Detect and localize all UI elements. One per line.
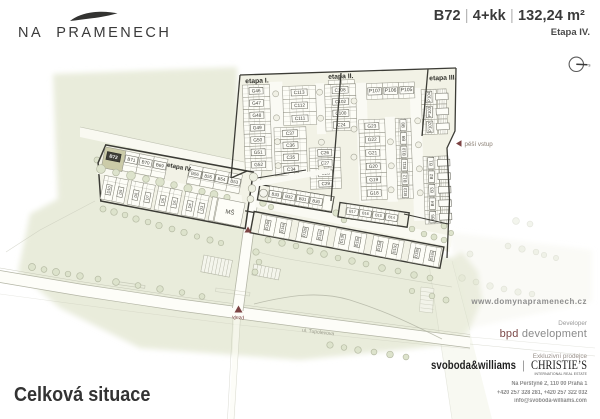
svg-text:C26: C26: [320, 150, 329, 155]
svg-text:B9: B9: [401, 135, 406, 141]
svg-text:G50: G50: [253, 137, 262, 142]
svg-text:G23: G23: [367, 123, 376, 128]
svg-text:B11: B11: [402, 161, 407, 169]
svg-text:P104: P104: [426, 91, 431, 102]
svg-text:B8: B8: [400, 122, 405, 128]
svg-text:P105: P105: [401, 87, 413, 93]
svg-text:G51: G51: [254, 150, 263, 155]
svg-text:P107: P107: [369, 88, 381, 94]
svg-text:P106: P106: [385, 88, 397, 94]
svg-text:D8: D8: [133, 192, 139, 198]
svg-text:C112: C112: [294, 103, 305, 108]
svg-text:B10: B10: [401, 147, 406, 156]
svg-text:etapa III.: etapa III.: [429, 74, 457, 82]
svg-text:C37: C37: [286, 131, 295, 136]
svg-text:s: s: [588, 63, 591, 68]
svg-text:C34: C34: [287, 167, 296, 172]
svg-text:B3: B3: [429, 187, 434, 193]
svg-text:G47: G47: [252, 100, 261, 105]
svg-text:C27: C27: [321, 160, 330, 165]
svg-text:C113: C113: [294, 90, 305, 95]
svg-text:B1: B1: [428, 160, 433, 166]
svg-text:G48: G48: [252, 113, 261, 118]
svg-text:pěší vstup: pěší vstup: [465, 141, 494, 148]
svg-text:D3: D3: [198, 205, 204, 211]
svg-text:C36: C36: [286, 143, 295, 148]
svg-text:C35: C35: [287, 155, 296, 160]
svg-text:C24: C24: [337, 122, 346, 127]
svg-text:C29: C29: [321, 181, 330, 186]
svg-text:B2: B2: [429, 173, 434, 179]
svg-text:G18: G18: [370, 190, 379, 195]
svg-text:G52: G52: [254, 162, 263, 167]
svg-text:B12: B12: [402, 174, 407, 183]
svg-text:G21: G21: [368, 150, 377, 155]
svg-text:B4: B4: [430, 200, 435, 206]
svg-text:P102: P102: [427, 121, 432, 132]
svg-text:D7: D7: [144, 195, 150, 201]
svg-text:G49: G49: [253, 125, 262, 130]
svg-text:C102: C102: [335, 99, 347, 104]
svg-text:B13: B13: [403, 187, 408, 196]
svg-text:B5: B5: [430, 214, 435, 220]
svg-text:P103: P103: [427, 106, 432, 117]
svg-text:D9: D9: [117, 189, 123, 195]
svg-text:G46: G46: [252, 88, 261, 93]
svg-text:D5: D5: [171, 200, 177, 206]
svg-text:vjezd: vjezd: [232, 314, 245, 321]
svg-text:C111: C111: [295, 116, 306, 121]
svg-text:G22: G22: [368, 137, 377, 142]
svg-text:G19: G19: [369, 177, 378, 182]
svg-text:D6: D6: [160, 198, 166, 204]
svg-text:G20: G20: [369, 164, 378, 169]
